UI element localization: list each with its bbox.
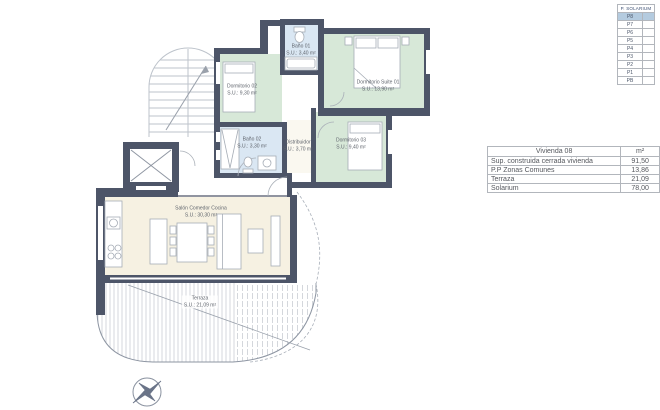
table-row: Terraza 21,09: [488, 175, 660, 184]
legend-row-p7: P7: [618, 21, 655, 29]
room-distribuidor: [287, 120, 311, 173]
legend-row-p8: P8: [618, 13, 655, 21]
area-table-header: Vivienda 08 m²: [488, 147, 660, 157]
legend-row-p3: P3: [618, 53, 655, 61]
floorplan-page: Dormitorio 02 S.U.: 9,30 m² Baño 01 S.U.…: [0, 0, 660, 410]
kitchen-island: [150, 219, 167, 264]
table-row: P.P Zonas Comunes 13,86: [488, 166, 660, 175]
floor-plan: [0, 0, 660, 410]
compass-icon: [133, 378, 161, 406]
shower-bano-02: [221, 129, 239, 169]
legend-row-p4: P4: [618, 45, 655, 53]
area-table-title: Vivienda 08: [488, 147, 621, 157]
toilet-bano-02: [244, 157, 252, 167]
tv-unit: [271, 216, 280, 266]
legend-row-p5: P5: [618, 37, 655, 45]
legend-row-p2: P2: [618, 61, 655, 69]
legend-row-p6: P6: [618, 29, 655, 37]
coffee-table: [248, 229, 263, 253]
legend-row-pb: PB: [618, 77, 655, 85]
legend-row-p1: P1: [618, 69, 655, 77]
legend-title: P. SOLARIUM: [618, 5, 655, 13]
area-table-unit: m²: [621, 147, 660, 157]
solarium-legend: P. SOLARIUM P8 P7 P6 P5 P4 P3 P2 P1 PB: [617, 4, 655, 85]
table-row: Sup. construida cerrada vivienda 91,50: [488, 157, 660, 166]
sofa: [217, 214, 241, 269]
area-table: Vivienda 08 m² Sup. construida cerrada v…: [487, 146, 660, 193]
legend-title-row: P. SOLARIUM: [618, 5, 655, 13]
dining-table: [177, 223, 207, 262]
table-row: Solarium 78,00: [488, 184, 660, 193]
